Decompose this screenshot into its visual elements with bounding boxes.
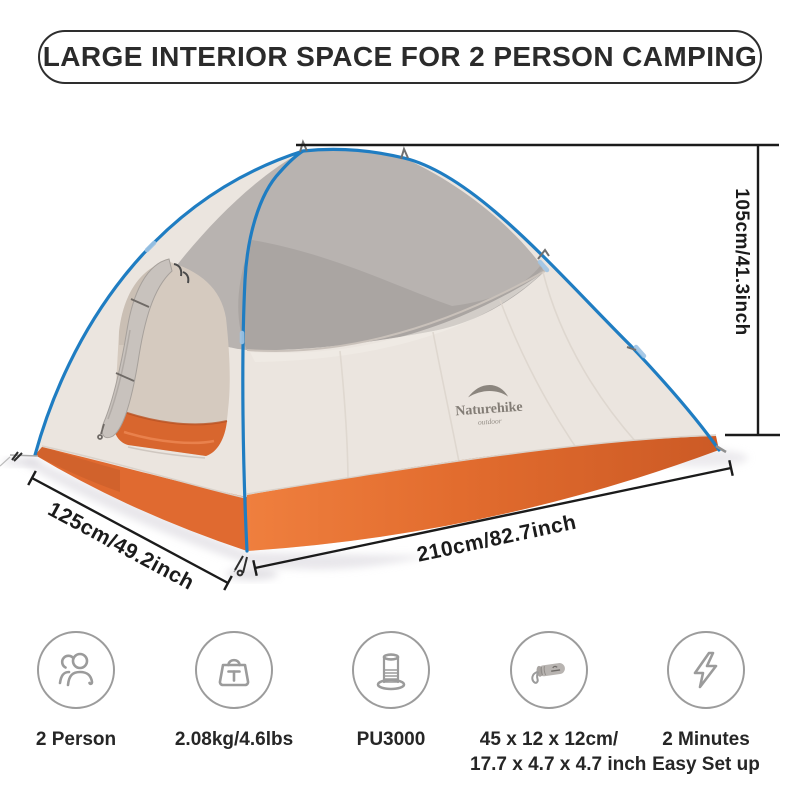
feature-label: 2.08kg/4.6lbs [155,727,313,752]
feature-label: 2 Minutes Easy Set up [627,727,785,777]
feature-waterproof: PU3000 [312,631,470,752]
waterproof-rating-icon [367,646,415,694]
feature-weight: 2.08kg/4.6lbs [155,631,313,752]
tent-body: Naturehike outdoor [35,149,719,551]
feature-circle [510,631,588,709]
feature-label: PU3000 [312,727,470,752]
feature-capacity: 2 Person [0,631,155,752]
feature-circle [352,631,430,709]
feature-circle [37,631,115,709]
feature-setup-time: 2 Minutes Easy Set up [627,631,785,777]
two-person-icon [52,646,100,694]
height-dimension-label: 105cm/41.3inch [731,188,752,335]
feature-circle [667,631,745,709]
feature-circle [195,631,273,709]
weight-icon [210,646,258,694]
quick-setup-icon [682,646,730,694]
feature-label: 2 Person [0,727,155,752]
feature-label: 45 x 12 x 12cm/ 17.7 x 4.7 x 4.7 inch [470,727,628,777]
brand-subtitle: outdoor [478,416,502,427]
product-infographic: LARGE INTERIOR SPACE FOR 2 PERSON CAMPIN… [0,0,800,800]
packed-size-icon [525,646,573,694]
feature-packed-size: 45 x 12 x 12cm/ 17.7 x 4.7 x 4.7 inch [470,631,628,777]
